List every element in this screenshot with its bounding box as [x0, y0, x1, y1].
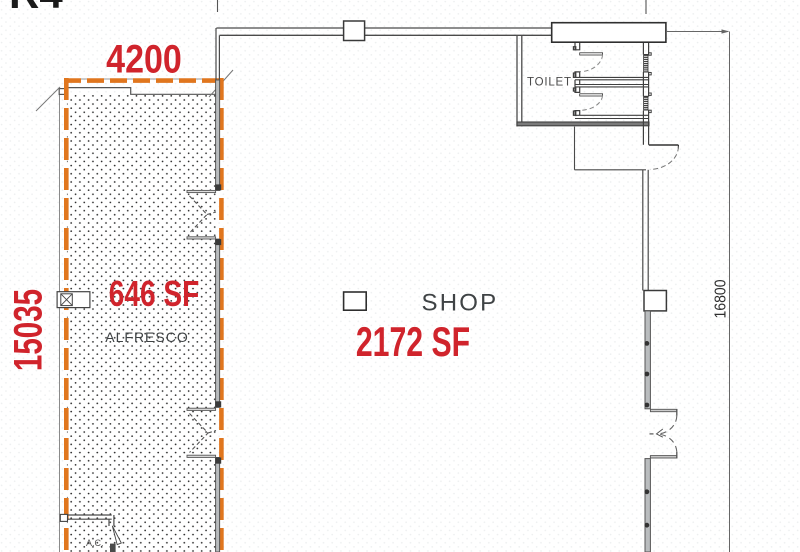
svg-text:SHOP: SHOP [422, 290, 499, 317]
svg-text:R4: R4 [9, 0, 63, 17]
svg-text:4200: 4200 [106, 36, 182, 81]
svg-text:646 SF: 646 SF [109, 274, 199, 314]
svg-text:16800: 16800 [711, 279, 729, 318]
svg-text:TOILET: TOILET [527, 77, 572, 89]
svg-text:15035: 15035 [6, 289, 50, 371]
svg-text:A.C.: A.C. [86, 538, 104, 548]
svg-text:ALFRESCO: ALFRESCO [105, 329, 188, 345]
svg-text:2172 SF: 2172 SF [356, 318, 470, 365]
